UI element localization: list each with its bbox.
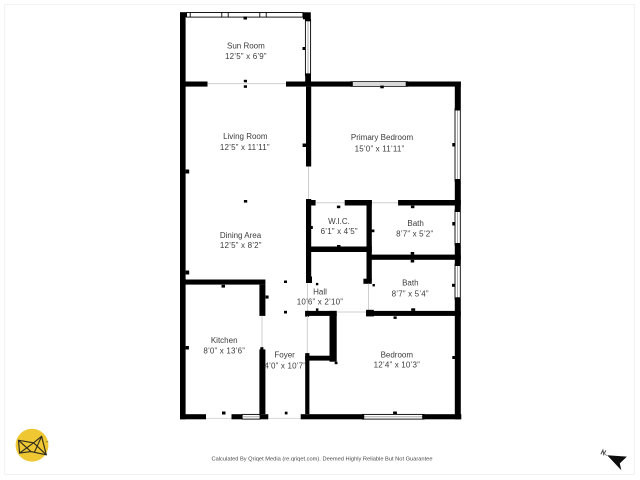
svg-text:Bedroom: Bedroom [381, 350, 414, 359]
svg-text:15’0” x 11’11”: 15’0” x 11’11” [355, 145, 405, 154]
svg-text:Dining Area: Dining Area [220, 231, 262, 240]
svg-text:Living Room: Living Room [223, 132, 268, 141]
svg-text:Calculated By Qriqet Media (re: Calculated By Qriqet Media (re.qriqet.co… [212, 457, 433, 463]
svg-text:Primary Bedroom: Primary Bedroom [351, 133, 414, 142]
svg-text:Sun Room: Sun Room [227, 42, 265, 51]
svg-text:4’0” x 10’7”: 4’0” x 10’7” [264, 361, 306, 370]
svg-text:8’7” x 5’4”: 8’7” x 5’4” [392, 290, 429, 299]
svg-text:12’5” x 8’2”: 12’5” x 8’2” [220, 241, 262, 250]
svg-text:Bath: Bath [407, 219, 423, 228]
svg-text:8’7” x 5’2”: 8’7” x 5’2” [396, 229, 433, 238]
svg-text:W.I.C.: W.I.C. [328, 217, 350, 226]
svg-text:Foyer: Foyer [274, 350, 295, 359]
svg-text:12’5” x 11’11”: 12’5” x 11’11” [220, 143, 270, 152]
svg-text:Kitchen: Kitchen [211, 336, 238, 345]
svg-text:12’4” x 10’3”: 12’4” x 10’3” [374, 361, 421, 370]
svg-text:Hall: Hall [313, 287, 327, 296]
svg-text:8’0” x 13’6”: 8’0” x 13’6” [203, 347, 245, 356]
svg-text:6’1” x 4’5”: 6’1” x 4’5” [321, 227, 358, 236]
svg-text:12’5” x 6’9”: 12’5” x 6’9” [225, 52, 267, 61]
svg-text:10’6” x 2’10”: 10’6” x 2’10” [297, 297, 344, 306]
svg-text:Bath: Bath [402, 278, 418, 287]
